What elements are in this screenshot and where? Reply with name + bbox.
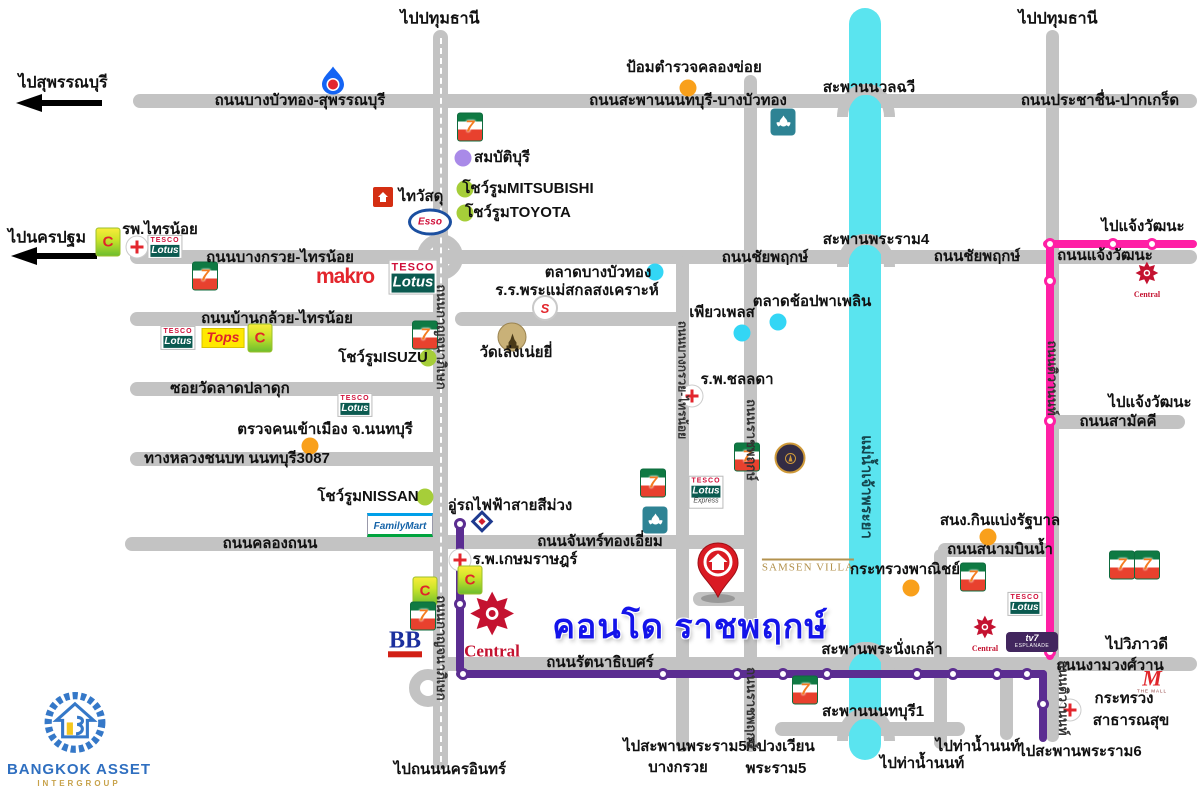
- poi-police-box: ป้อมตำรวจคลองข่อย: [626, 60, 761, 76]
- dir-rama5-bridge-2: บางกรวย: [648, 760, 708, 776]
- pink-line-station-0: [1044, 238, 1056, 250]
- familymart-icon: FamilyMart: [367, 513, 433, 537]
- road-bangkruai-sainoi-v: ถนนบางกรวย-ไทรน้อย: [676, 321, 689, 439]
- road-tiwanon-2: ถนนติวานนท์: [1056, 660, 1070, 735]
- dir-vibhavadi: ไปวิภาวดี: [1106, 637, 1168, 653]
- poi-sombatburi: สมบัติบุรี: [474, 150, 530, 166]
- poi-immigration: ตรวจคนเข้าเมือง จ.นนทบุรี: [237, 422, 413, 438]
- temple-emblem-icon: [775, 443, 806, 474]
- poi-ministry-of-commerce: กระทรวงพาณิชย์: [850, 562, 960, 578]
- samsen-villa-logo: SAMSEN VILLA: [762, 559, 854, 574]
- poi-sainoi-hospital: รพ.ไทรน้อย: [122, 222, 198, 238]
- pink-line-station-4: [1044, 415, 1056, 427]
- dir-chaengwattana-1: ไปแจ้งวัฒนะ: [1101, 219, 1184, 235]
- road-sanambin-nam: ถนนสนามบินน้ำ: [947, 542, 1053, 558]
- dir-rama5-circle-2: พระราม5: [746, 761, 807, 777]
- poi-nissan-showroom: โชว์รูมNISSAN: [317, 489, 418, 505]
- bangkok-bank-icon: [771, 109, 796, 136]
- brand-bangkok-asset: BANGKOK ASSET: [7, 762, 151, 778]
- seven-eleven-icon: 7: [457, 113, 483, 142]
- dir-pathumthani-right: ไปปทุมธานี: [1018, 12, 1097, 29]
- road-kanchanaphisek-2: ถนนกาญจนาภิเษก: [434, 595, 448, 700]
- central-icon: Central: [1134, 261, 1160, 299]
- dir-tha-nam-non-2: ไปท่าน้ำนนท์: [880, 756, 964, 772]
- central-icon: Central: [972, 615, 998, 653]
- poi-ministry-of-health-2: สาธารณสุข: [1093, 713, 1170, 729]
- poi-shop-pa-ploen: ตลาดช้อปพาเพลิน: [753, 294, 872, 310]
- dir-rama5-bridge-1: ไปสะพานพระราม5/: [623, 739, 751, 755]
- seven-eleven-icon: 7: [960, 563, 986, 592]
- esplanade-icon: tv7ESPLANADE: [1006, 632, 1058, 652]
- poi-isuzu-showroom: โชว์รูมISUZU: [338, 350, 428, 366]
- bridge-nuanchawi: สะพานนวลฉวี: [823, 80, 915, 96]
- pure-place-marker: [734, 325, 751, 342]
- ministry-of-commerce-marker: [903, 580, 920, 597]
- dir-chaengwattana-2: ไปแจ้งวัฒนะ: [1108, 395, 1191, 411]
- poi-pure-place: เพียวเพลส: [689, 305, 755, 321]
- seven-eleven-icon: 7: [640, 469, 666, 498]
- dir-nakhonpathom: ไปนครปฐม: [8, 231, 86, 248]
- bridge-nonthaburi1: สะพานนนทบุรี1: [822, 704, 924, 720]
- dir-rama6-bridge: ไปสะพานพระราม6: [1018, 744, 1142, 760]
- poi-thaiwatsadu: ไทวัสดุ: [399, 189, 444, 205]
- bangkok-bank-icon: [643, 507, 668, 534]
- road-khlong-thanon: ถนนคลองถนน: [223, 536, 318, 552]
- road-ratchaphruek-1: ถนนราชพฤกษ์: [744, 399, 758, 481]
- poi-chollada-hospital: ร.พ.ชลลดา: [700, 372, 773, 388]
- sainoi-hospital-cross-icon: [126, 236, 149, 259]
- arrow-west-nakhonpathom-icon: [11, 247, 99, 265]
- purple-line-station-7: [911, 668, 923, 680]
- purple-line-station-3: [657, 668, 669, 680]
- condo-location-pin: [695, 541, 741, 603]
- pink-line-segment-1: [1046, 240, 1054, 660]
- poi-school: ร.ร.พระแม่สกลสงเคราะห์: [495, 283, 659, 299]
- road-chanthong-iam: ถนนจันทร์ทองเอี่ยม: [537, 534, 663, 550]
- purple-line-station-9: [991, 668, 1003, 680]
- dir-pathumthani-left: ไปปทุมธานี: [400, 12, 479, 29]
- purple-line-station-11: [1037, 698, 1049, 710]
- purple-line-station-5: [777, 668, 789, 680]
- road-bangbuathong-suphanburi: ถนนบางบัวทอง-สุพรรณบุรี: [215, 93, 386, 109]
- brand-intergroup: INTERGROUP: [37, 780, 120, 788]
- dir-nakhon-in: ไปถนนนครอินทร์: [394, 762, 506, 778]
- purple-line-segment-0: [456, 520, 464, 674]
- purple-line-station-2: [457, 668, 469, 680]
- seven-eleven-icon: 7: [410, 602, 436, 631]
- sombatburi-marker: [455, 150, 472, 167]
- purple-line-station-0: [454, 518, 466, 530]
- poi-toyota-showroom: โชว์รูมTOYOTA: [465, 205, 571, 221]
- purple-line-station-6: [821, 668, 833, 680]
- dir-suphanburi: ไปสุพรรณบุรี: [18, 76, 107, 93]
- road-rural-3087: ทางหลวงชนบท นนทบุรี3087: [144, 451, 330, 467]
- road-saphan-nonthaburi-bangbuathong: ถนนสะพานนนทบุรี-บางบัวทอง: [589, 93, 787, 109]
- road-samakkhi: ถนนสามัคคี: [1079, 414, 1156, 430]
- seven-eleven-icon: 7: [1134, 551, 1160, 580]
- pink-line-station-3: [1044, 275, 1056, 287]
- tesco-lotus-express-icon: TESCOLotusExpress: [688, 476, 723, 509]
- river-chao-phraya: แม่น้ำเจ้าพระยา: [858, 435, 874, 539]
- arrow-west-suphanburi-icon: [16, 94, 104, 112]
- tesco-lotus-icon: TESCOLotus: [160, 326, 195, 350]
- shop-pa-ploen-market-marker: [770, 314, 787, 331]
- makro-icon: makro: [316, 265, 374, 289]
- poi-lottery-office: สนง.กินแบ่งรัฐบาล: [940, 513, 1060, 529]
- road-bangkruai-sainoi-h: ถนนบางกรวย-ไทรน้อย: [206, 250, 354, 266]
- tesco-lotus-icon: TESCOLotus: [337, 393, 372, 417]
- road-chaiyaphruek-1: ถนนชัยพฤกษ์: [722, 250, 809, 266]
- road-ratchaphruek-2: ถนนราชพฤกษ์: [744, 667, 758, 749]
- tesco-lotus-icon: TESCOLotus: [1007, 592, 1042, 616]
- road-market-link: [455, 312, 689, 326]
- seven-eleven-icon: 7: [792, 676, 818, 705]
- poi-ministry-of-health-1: กระทรวง: [1095, 691, 1154, 707]
- road-tiwanon-1: ถนนติวานนท์: [1045, 340, 1059, 415]
- poi-bangbuathong-market: ตลาดบางบัวทอง: [545, 265, 652, 281]
- seven-eleven-icon: 7: [1109, 551, 1135, 580]
- road-bankluai-sainoi: ถนนบ้านกล้วย-ไทรน้อย: [201, 311, 353, 327]
- road-rattanathibet: ถนนรัตนาธิเบศร์: [546, 655, 653, 671]
- poi-wat-leng-noei-yi: วัดเล่งเน่ยยี่: [480, 345, 553, 361]
- bridge-phra-nangklao: สะพานพระนั่งเกล้า: [821, 642, 942, 658]
- big-c-icon: C: [96, 228, 121, 257]
- esso-station-icon: Esso: [408, 209, 452, 236]
- dir-tha-nam-non-1: ไปท่าน้ำนนท์: [936, 739, 1020, 755]
- road-kanchanaphisek-1: ถนนกาญจนาภิเษก: [434, 284, 448, 389]
- poi-mitsubishi-showroom: โชว์รูมMITSUBISHI: [462, 181, 593, 197]
- central-department-store-icon: Central: [464, 591, 520, 662]
- road-soi-wat-latplakut: ซอยวัดลาดปลาดุก: [170, 381, 289, 397]
- big-c-icon: C: [248, 324, 273, 353]
- poi-purple-line-depot: อู่รถไฟฟ้าสายสีม่วง: [448, 498, 573, 514]
- bb-market-icon: BB: [388, 630, 422, 657]
- poi-kasemrad-hospital: ร.พ.เกษมราษฎร์: [473, 552, 578, 568]
- map-title: คอนโด ราชพฤกษ์: [552, 610, 828, 646]
- thaiwatsadu-icon: [373, 187, 393, 207]
- tesco-lotus-icon: TESCOLotus: [147, 235, 182, 259]
- road-chaiyaphruek-2: ถนนชัยพฤกษ์: [934, 249, 1021, 265]
- road-prachachuen-pakkret: ถนนประชาชื่น-ปากเกร็ด: [1021, 93, 1179, 109]
- dir-rama5-circle-1: ไปวงเวียน: [749, 739, 814, 755]
- purple-line-station-4: [731, 668, 743, 680]
- purple-line-station-10: [1021, 668, 1033, 680]
- nissan-showroom-marker: [417, 489, 434, 506]
- bangkok-asset-logo: [42, 692, 108, 763]
- map-canvas: 7EssoCTESCOLotus7makroTESCOLotusSTESCOLo…: [0, 0, 1197, 791]
- road-chaengwattana: ถนนแจ้งวัฒนะ: [1057, 248, 1153, 264]
- tesco-lotus-icon: TESCOLotus: [389, 260, 438, 295]
- bridge-rama4: สะพานพระราม4: [823, 232, 930, 248]
- purple-line-station-8: [947, 668, 959, 680]
- tops-icon: Tops: [202, 328, 245, 348]
- road-ngamwongwan: ถนนงามวงศ์วาน: [1056, 658, 1164, 674]
